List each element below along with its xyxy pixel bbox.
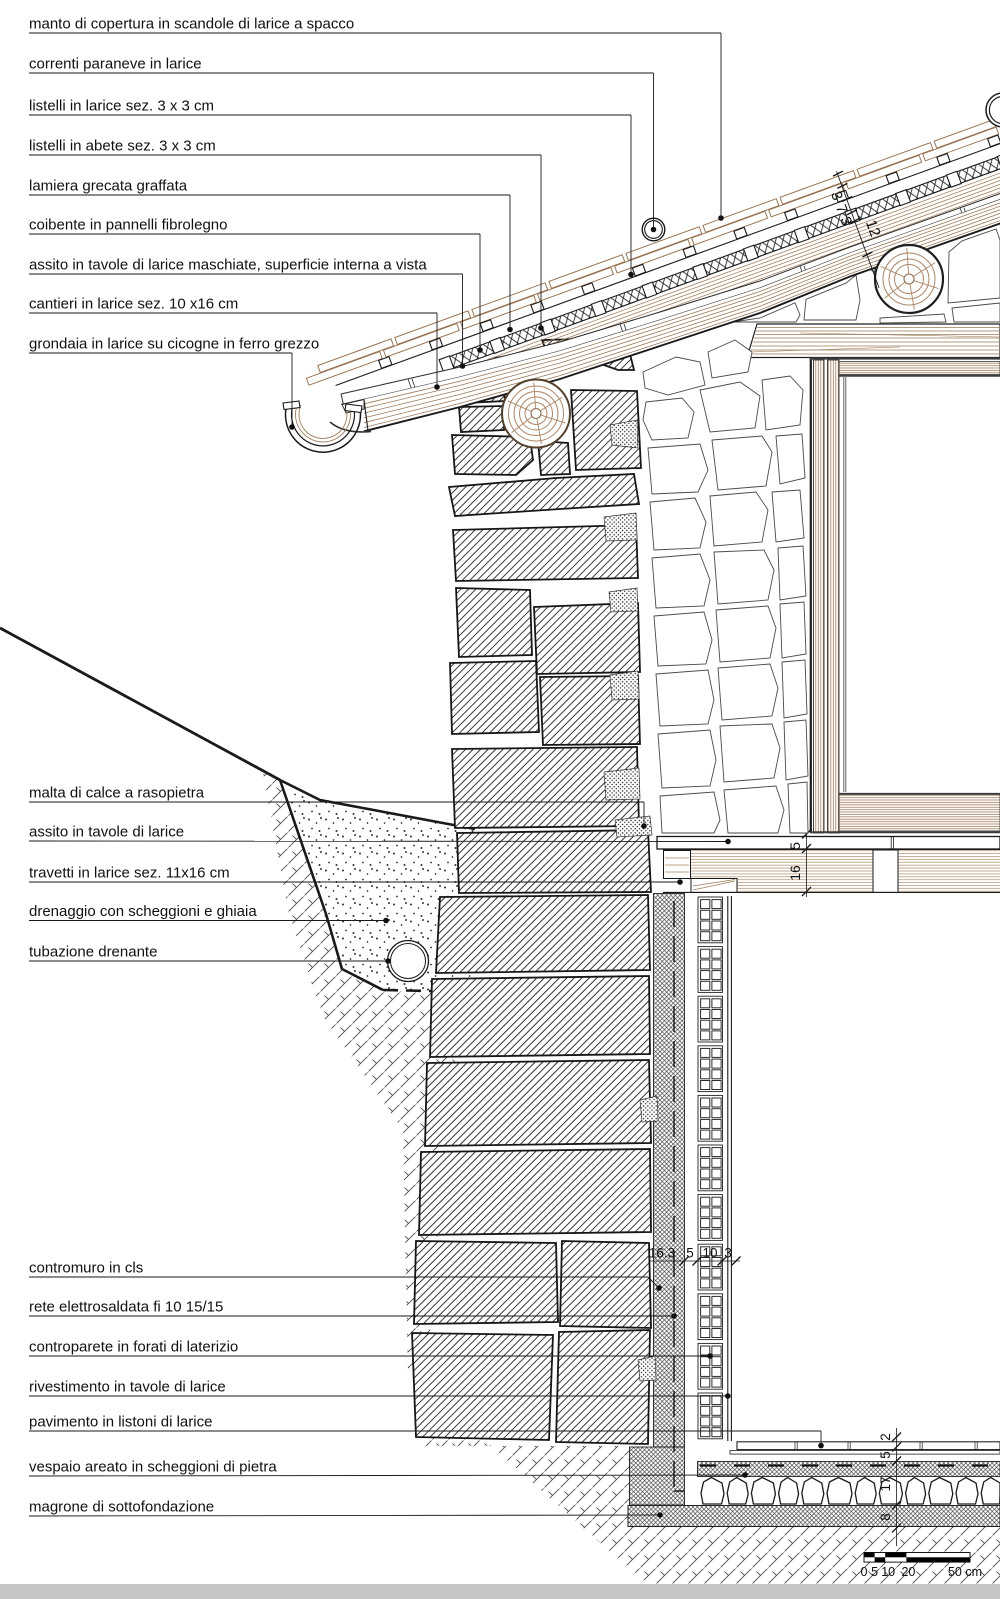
svg-text:grondaia in larice su cicogne: grondaia in larice su cicogne in ferro g… — [29, 336, 319, 353]
svg-text:rete elettrosaldata fi 10 15/1: rete elettrosaldata fi 10 15/15 — [29, 1299, 223, 1316]
svg-text:50 cm: 50 cm — [948, 1565, 982, 1579]
svg-text:5: 5 — [686, 1246, 694, 1261]
svg-text:magrone di sottofondazione: magrone di sottofondazione — [29, 1499, 214, 1516]
svg-text:17: 17 — [878, 1476, 893, 1491]
svg-text:correnti paraneve in larice: correnti paraneve in larice — [29, 56, 202, 73]
svg-text:tubazione drenante: tubazione drenante — [29, 944, 157, 961]
svg-text:16.3: 16.3 — [649, 1246, 675, 1261]
svg-text:manto di copertura in scandole: manto di copertura in scandole di larice… — [29, 16, 354, 33]
svg-text:listelli in larice sez. 3 x 3: listelli in larice sez. 3 x 3 cm — [29, 98, 214, 115]
svg-text:10: 10 — [881, 1565, 895, 1579]
svg-text:assito in tavole di larice mas: assito in tavole di larice maschiate, su… — [29, 257, 427, 274]
svg-text:pavimento in listoni di larice: pavimento in listoni di larice — [29, 1414, 212, 1431]
svg-text:0: 0 — [861, 1565, 868, 1579]
svg-text:10: 10 — [702, 1246, 717, 1261]
svg-text:assito in tavole di larice: assito in tavole di larice — [29, 824, 184, 841]
svg-text:malta di calce a rasopietra: malta di calce a rasopietra — [29, 785, 205, 802]
svg-text:lamiera grecata graffata: lamiera grecata graffata — [29, 178, 188, 195]
svg-text:8: 8 — [878, 1513, 893, 1521]
svg-text:20: 20 — [901, 1565, 915, 1579]
svg-text:16: 16 — [787, 865, 803, 881]
svg-text:controparete in forati di late: controparete in forati di laterizio — [29, 1339, 238, 1356]
svg-text:5: 5 — [871, 1565, 878, 1579]
svg-text:5: 5 — [787, 842, 803, 850]
svg-text:coibente in pannelli fibrolegn: coibente in pannelli fibrolegno — [29, 217, 227, 234]
svg-text:3: 3 — [724, 1246, 732, 1261]
svg-text:drenaggio con scheggioni e ghi: drenaggio con scheggioni e ghiaia — [29, 903, 257, 920]
svg-text:vespaio areato in scheggioni d: vespaio areato in scheggioni di pietra — [29, 1459, 277, 1476]
svg-text:2: 2 — [878, 1433, 893, 1441]
svg-text:contromuro in cls: contromuro in cls — [29, 1260, 143, 1277]
svg-text:5: 5 — [878, 1451, 893, 1459]
svg-text:rivestimento in tavole di lari: rivestimento in tavole di larice — [29, 1379, 226, 1396]
svg-text:travetti in larice sez. 11x16: travetti in larice sez. 11x16 cm — [29, 865, 230, 882]
svg-text:listelli in abete sez. 3 x 3 c: listelli in abete sez. 3 x 3 cm — [29, 138, 216, 155]
svg-text:cantieri in larice sez. 10 x1: cantieri in larice sez. 10 x16 cm — [29, 296, 238, 313]
